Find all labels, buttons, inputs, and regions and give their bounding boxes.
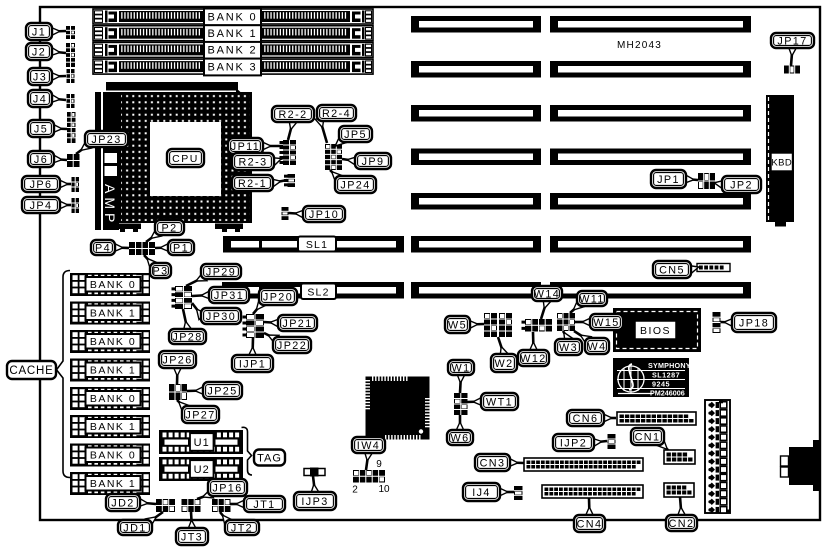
svg-text:JP11: JP11 [231,141,260,153]
svg-text:J5: J5 [34,123,48,135]
svg-text:JP26: JP26 [162,354,192,366]
svg-text:9245: 9245 [652,380,670,389]
svg-text:J3: J3 [33,71,47,83]
svg-text:CACHE: CACHE [9,365,53,377]
svg-text:JP23: JP23 [91,134,121,146]
svg-text:JP29: JP29 [206,266,236,278]
svg-text:IJP1: IJP1 [239,358,266,370]
svg-text:J4: J4 [33,93,47,105]
svg-text:U1: U1 [194,437,210,449]
svg-text:CN6: CN6 [573,413,599,425]
svg-text:BANK 0: BANK 0 [208,11,258,23]
svg-text:P2: P2 [161,222,177,234]
svg-text:IJ4: IJ4 [472,487,491,499]
svg-text:JP20: JP20 [263,291,293,303]
svg-text:BANK 2: BANK 2 [208,45,258,57]
svg-text:SL1287: SL1287 [652,371,680,380]
svg-text:CN1: CN1 [635,431,661,443]
svg-text:W2: W2 [495,358,514,370]
svg-text:P1: P1 [173,242,189,254]
svg-text:BANK 1: BANK 1 [208,28,258,40]
svg-text:CN2: CN2 [669,518,695,530]
svg-text:JT3: JT3 [181,531,203,543]
svg-text:BANK 1: BANK 1 [90,478,136,490]
svg-text:JP21: JP21 [282,318,312,330]
svg-text:W1: W1 [452,362,471,374]
svg-text:W5: W5 [448,319,467,331]
svg-text:JP31: JP31 [214,290,244,302]
svg-text:JP25: JP25 [207,385,237,397]
svg-text:AMP: AMP [102,184,118,226]
svg-text:JP9: JP9 [362,156,385,168]
svg-text:CN3: CN3 [480,457,506,469]
svg-text:JP10: JP10 [309,209,339,221]
svg-text:BANK 1: BANK 1 [90,308,136,320]
svg-text:R2-3: R2-3 [238,156,267,168]
svg-text:JD2: JD2 [111,497,134,509]
svg-text:JP16: JP16 [212,482,242,494]
svg-text:JP2: JP2 [730,179,753,191]
svg-text:R2-1: R2-1 [238,178,267,190]
svg-text:JP1: JP1 [657,174,680,186]
svg-text:W14: W14 [534,288,560,300]
svg-text:BANK 3: BANK 3 [208,61,258,73]
svg-text:KBD: KBD [771,158,792,169]
svg-text:TAG: TAG [257,452,282,464]
svg-text:CN4: CN4 [577,518,603,530]
svg-text:BANK 1: BANK 1 [90,421,136,433]
svg-text:W3: W3 [559,342,578,354]
svg-text:JP22: JP22 [277,340,307,352]
svg-text:R2-4: R2-4 [322,108,351,120]
svg-text:BANK 0: BANK 0 [90,279,136,291]
svg-text:BANK 0: BANK 0 [90,393,136,405]
svg-text:CPU: CPU [172,153,199,165]
svg-text:BANK 1: BANK 1 [90,365,136,377]
svg-text:JT2: JT2 [231,522,253,534]
svg-text:J1: J1 [32,26,46,38]
svg-text:W4: W4 [588,341,607,353]
svg-text:IJP3: IJP3 [301,496,328,508]
svg-text:R2-2: R2-2 [278,109,307,121]
svg-text:BIOS: BIOS [640,325,671,337]
svg-text:SL1: SL1 [306,239,328,251]
svg-text:JP24: JP24 [340,179,370,191]
svg-text:JP6: JP6 [30,179,53,191]
svg-text:JP28: JP28 [172,331,202,343]
svg-text:WT1: WT1 [486,396,513,408]
svg-text:JD1: JD1 [123,522,146,534]
svg-text:J2: J2 [32,46,46,58]
svg-text:SL2: SL2 [307,287,329,299]
svg-text:JP30: JP30 [206,311,236,323]
svg-text:W6: W6 [451,432,470,444]
svg-text:BANK 0: BANK 0 [90,336,136,348]
svg-text:W11: W11 [579,293,605,305]
svg-text:9: 9 [376,459,382,470]
svg-text:MH2043: MH2043 [617,40,662,51]
svg-text:W12: W12 [520,353,546,365]
svg-text:JP17: JP17 [777,35,807,47]
svg-text:SYMPHONY: SYMPHONY [648,361,691,370]
svg-text:J6: J6 [34,154,48,166]
svg-text:JP4: JP4 [30,200,53,212]
svg-text:10: 10 [378,484,390,495]
svg-text:JT1: JT1 [253,499,275,511]
svg-text:U2: U2 [194,464,210,476]
svg-text:JP18: JP18 [739,317,769,329]
svg-text:P3: P3 [152,265,168,277]
svg-text:JP5: JP5 [344,129,367,141]
svg-text:JP27: JP27 [185,409,215,421]
svg-text:PM246006: PM246006 [650,389,685,398]
svg-text:P4: P4 [95,242,111,254]
svg-text:CN5: CN5 [659,264,685,276]
svg-text:IJP2: IJP2 [560,437,587,449]
svg-text:IW4: IW4 [357,440,380,452]
svg-text:W15: W15 [593,317,619,329]
svg-text:BANK 0: BANK 0 [90,450,136,462]
svg-text:2: 2 [352,485,358,496]
